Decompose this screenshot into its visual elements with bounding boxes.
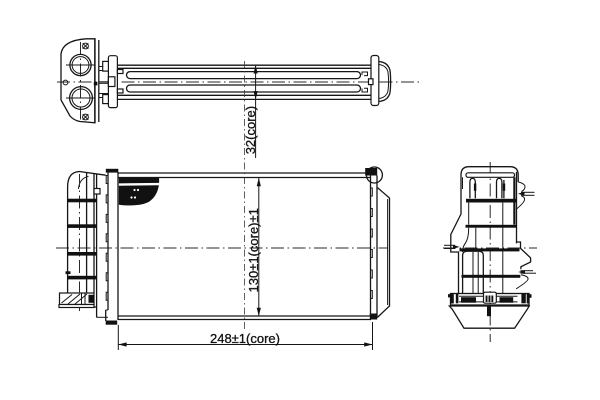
svg-text:130±1(core)±1: 130±1(core)±1 — [246, 208, 261, 292]
svg-text:32(core): 32(core) — [243, 106, 258, 154]
svg-text:248±1(core): 248±1(core) — [210, 331, 280, 346]
